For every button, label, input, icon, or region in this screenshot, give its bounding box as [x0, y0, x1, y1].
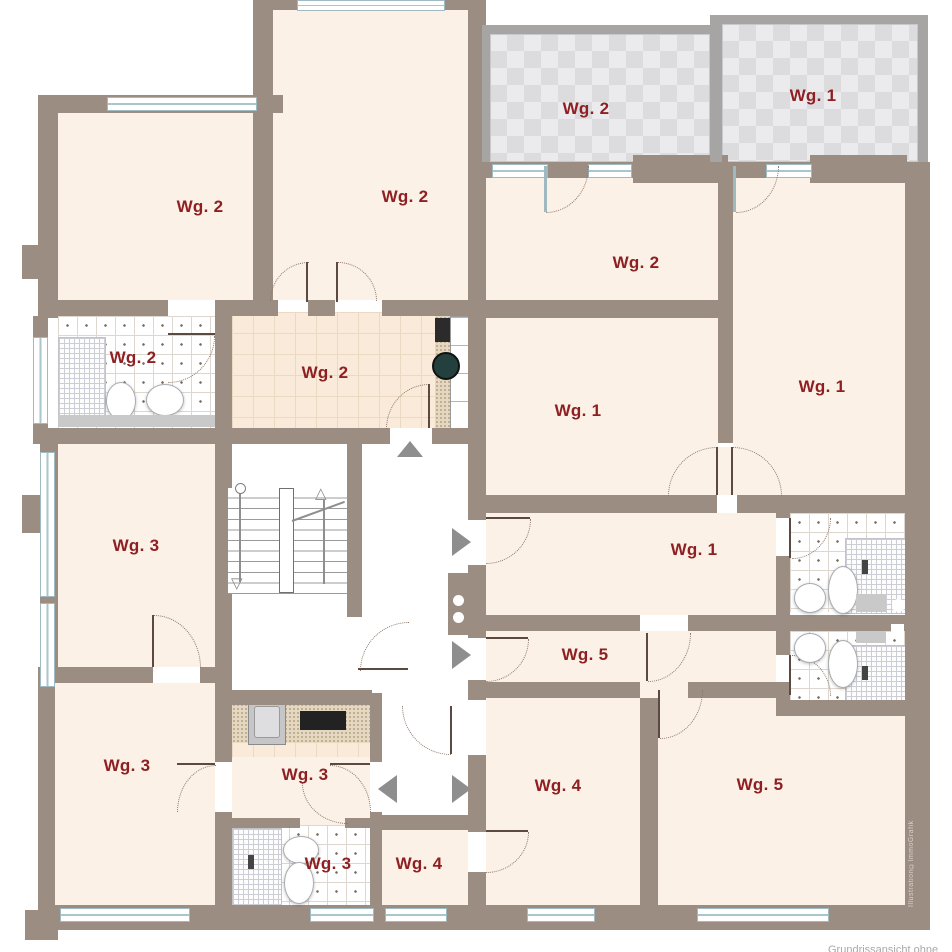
room-wg4	[486, 693, 640, 905]
door-leaf	[168, 333, 215, 335]
sink-icon	[794, 633, 826, 663]
balcony-divider	[710, 15, 722, 162]
door-leaf	[428, 384, 430, 428]
room-wg1-right	[733, 178, 905, 495]
floor-plan: ▽ △ Wg. 2 Wg. 1 Wg. 2 Wg. 2 Wg. 2 Wg. 1 …	[0, 0, 952, 952]
wall	[486, 495, 717, 513]
balcony-door-leaf	[733, 166, 736, 212]
corridor-wg5	[486, 631, 776, 682]
room-label-wg3-bottom: Wg. 3	[104, 756, 151, 776]
wall	[215, 812, 232, 905]
room-label-wg1-right: Wg. 1	[799, 377, 846, 397]
door-leaf	[486, 517, 530, 519]
wall-circle	[892, 599, 905, 612]
stair-down-arrow: ▽	[231, 576, 243, 591]
wall	[308, 300, 335, 316]
wall	[38, 683, 55, 930]
window	[385, 908, 447, 922]
window	[33, 337, 48, 424]
wall	[382, 300, 468, 316]
balcony-railing	[918, 15, 928, 162]
wall	[737, 495, 930, 513]
wall	[640, 698, 658, 905]
wall	[718, 162, 733, 443]
room-wg2-top-tall	[273, 10, 468, 300]
door-leaf	[330, 763, 370, 765]
toilet-icon	[828, 566, 858, 614]
wall	[345, 818, 372, 828]
window	[527, 908, 595, 922]
room-label-wg3-left: Wg. 3	[113, 536, 160, 556]
room-label-wg3-bath: Wg. 3	[305, 854, 352, 874]
room-label-wg2-top: Wg. 2	[382, 187, 429, 207]
watermark-text: Illustration©ImmoGrafik	[908, 812, 915, 907]
balcony-door-leaf	[544, 166, 547, 212]
wall	[38, 95, 58, 318]
window	[297, 0, 445, 11]
door-leaf	[486, 637, 528, 639]
door-leaf	[152, 615, 154, 667]
staircase: ▽ △	[228, 488, 347, 594]
wall	[33, 428, 390, 444]
window	[107, 97, 257, 111]
wall	[370, 815, 470, 830]
door-leaf	[658, 690, 660, 738]
shower-head-icon	[862, 666, 868, 680]
fridge-inner	[254, 706, 280, 738]
wall	[776, 556, 790, 655]
entrance-arrow-wg4	[452, 775, 471, 803]
room-label-wg5: Wg. 5	[737, 775, 784, 795]
door-leaf	[646, 633, 648, 681]
balcony-railing	[482, 25, 718, 34]
entrance-arrow-up	[397, 441, 423, 457]
stair-up-arrow: △	[315, 486, 327, 501]
room-label-wg1-balcony: Wg. 1	[790, 86, 837, 106]
wall	[38, 300, 168, 316]
panel-circle	[453, 612, 464, 623]
door-leaf	[789, 655, 791, 695]
shower-head-icon	[862, 560, 868, 574]
room-label-wg1-hall: Wg. 1	[671, 540, 718, 560]
room-label-wg2-top-left: Wg. 2	[177, 197, 224, 217]
entrance-arrow-wg5	[452, 641, 471, 669]
toilet-icon	[828, 640, 858, 688]
window	[588, 164, 632, 178]
balcony-door-window	[492, 164, 548, 178]
shower-tray	[856, 594, 886, 612]
wall	[215, 316, 232, 428]
wall	[370, 693, 382, 762]
door-leaf	[789, 518, 791, 558]
wall	[468, 680, 486, 700]
room-label-wg2-balcony: Wg. 2	[563, 99, 610, 119]
room-label-wg1-center: Wg. 1	[555, 401, 602, 421]
cooktop-icon	[300, 711, 346, 730]
door-leaf	[336, 262, 338, 302]
room-label-wg4: Wg. 4	[535, 776, 582, 796]
room-wg2-top-right	[486, 178, 718, 300]
door-leaf	[358, 668, 408, 670]
wall	[468, 872, 486, 905]
balcony-floor-wg2	[490, 34, 710, 162]
sink-icon	[432, 352, 460, 380]
wall	[232, 818, 300, 828]
window	[40, 603, 55, 687]
sink-icon	[794, 583, 826, 613]
wall-square	[891, 624, 904, 636]
window	[60, 908, 190, 922]
stair-start-circle	[235, 483, 246, 494]
shower-tray	[856, 631, 886, 643]
wall	[215, 300, 278, 316]
wall	[486, 682, 640, 698]
stair-rail	[279, 488, 294, 593]
door-leaf	[716, 447, 718, 495]
entrance-arrow-wg1	[452, 528, 471, 556]
shower-head-icon	[248, 855, 254, 869]
footer-text: Grundrissansicht ohne Gewähr	[828, 944, 952, 952]
room-label-wg2-bath: Wg. 2	[110, 348, 157, 368]
door-leaf	[306, 262, 308, 302]
balcony-railing	[482, 25, 490, 162]
bathtub	[58, 415, 215, 427]
room-label-wg2-kitchen: Wg. 2	[302, 363, 349, 383]
wall	[486, 300, 718, 318]
room-label-wg5-hall: Wg. 5	[562, 645, 609, 665]
room-wg2-top-left	[58, 113, 253, 300]
door-leaf	[450, 706, 452, 754]
balcony-railing	[722, 15, 928, 24]
chimney	[22, 245, 38, 279]
stove-icon	[435, 318, 450, 342]
panel-circle	[453, 595, 464, 606]
door-leaf	[177, 763, 215, 765]
shower-wg3	[232, 828, 282, 907]
chimney	[22, 495, 40, 533]
wall-corner	[25, 910, 58, 940]
wall	[486, 615, 640, 631]
window	[697, 908, 829, 922]
door-leaf	[486, 830, 528, 832]
stair-guide-line	[239, 490, 241, 582]
room-label-wg3-hall: Wg. 3	[282, 765, 329, 785]
shower-wg2	[58, 337, 106, 421]
room-label-wg4-entry: Wg. 4	[396, 854, 443, 874]
wall	[776, 513, 790, 518]
entrance-arrow-wg3	[378, 775, 397, 803]
window	[40, 452, 55, 597]
wall	[432, 428, 468, 444]
wall	[38, 667, 153, 683]
wall	[253, 0, 273, 316]
wall	[215, 690, 372, 705]
room-wg5	[658, 698, 907, 905]
wall	[347, 443, 362, 617]
window	[310, 908, 374, 922]
stair-diagonal	[292, 501, 345, 522]
door-leaf	[731, 447, 733, 495]
stair-guide-line	[323, 500, 325, 584]
wall	[468, 296, 486, 520]
wall-pier	[810, 155, 907, 183]
sink-icon	[146, 384, 184, 416]
wall	[688, 682, 790, 698]
room-label-wg2-top-right: Wg. 2	[613, 253, 660, 273]
